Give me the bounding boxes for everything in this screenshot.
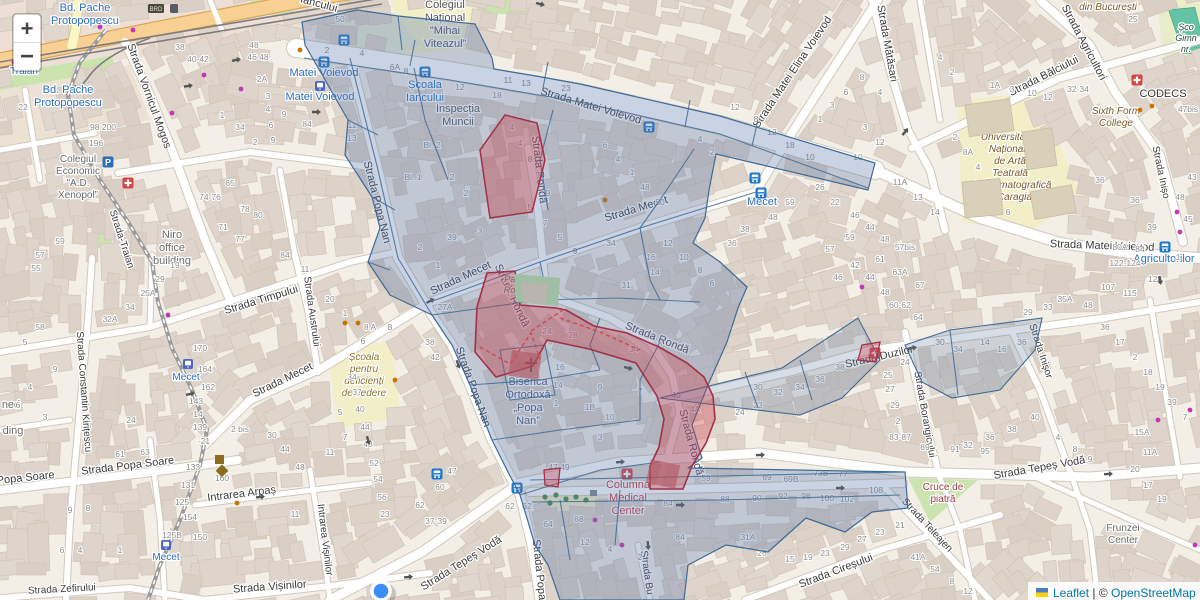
svg-text:6: 6 xyxy=(1006,207,1011,217)
svg-text:62: 62 xyxy=(505,501,515,511)
svg-text:95: 95 xyxy=(980,446,990,456)
svg-text:22: 22 xyxy=(18,102,28,112)
svg-text:5: 5 xyxy=(338,407,343,417)
svg-text:-21: -21 xyxy=(198,436,211,446)
svg-text:48: 48 xyxy=(1175,192,1185,202)
svg-text:2A: 2A xyxy=(257,74,268,84)
svg-text:6: 6 xyxy=(60,545,65,555)
svg-text:91: 91 xyxy=(950,444,960,454)
svg-text:12: 12 xyxy=(963,586,973,596)
svg-text:19: 19 xyxy=(1155,382,1165,392)
svg-text:40: 40 xyxy=(355,404,365,414)
svg-text:Sixth Form: Sixth Form xyxy=(1092,106,1140,117)
svg-text:11: 11 xyxy=(301,264,310,274)
svg-text:17: 17 xyxy=(1143,480,1153,490)
svg-text:36: 36 xyxy=(727,238,737,248)
svg-text:54: 54 xyxy=(930,564,940,574)
svg-text:48: 48 xyxy=(880,287,890,297)
svg-text:P: P xyxy=(105,157,111,167)
svg-text:Școala: Școala xyxy=(349,352,380,363)
svg-text:27: 27 xyxy=(857,534,867,544)
svg-text:BRD: BRD xyxy=(150,7,163,13)
svg-text:1: 1 xyxy=(343,308,348,318)
svg-text:125: 125 xyxy=(175,497,189,507)
svg-text:14: 14 xyxy=(193,409,203,419)
svg-text:36: 36 xyxy=(1095,175,1105,185)
svg-text:19: 19 xyxy=(170,260,180,270)
svg-text:133: 133 xyxy=(186,462,200,472)
svg-text:1: 1 xyxy=(220,110,225,120)
svg-text:48: 48 xyxy=(249,40,259,50)
svg-text:20: 20 xyxy=(1130,464,1140,474)
svg-text:Teatrală: Teatrală xyxy=(992,168,1028,179)
svg-text:8 A: 8 A xyxy=(364,322,377,332)
svg-text:36: 36 xyxy=(985,432,995,442)
svg-text:Bd. Pache: Bd. Pache xyxy=(60,2,111,14)
svg-text:57bis: 57bis xyxy=(895,242,915,252)
svg-text:Cruce de: Cruce de xyxy=(923,482,964,493)
svg-text:Economic: Economic xyxy=(56,166,100,177)
svg-text:12: 12 xyxy=(730,102,740,112)
svg-text:29: 29 xyxy=(890,400,900,410)
svg-text:Mecet: Mecet xyxy=(152,552,179,563)
svg-text:39: 39 xyxy=(1147,222,1157,232)
svg-text:38: 38 xyxy=(1007,424,1017,434)
svg-text:65: 65 xyxy=(225,178,235,188)
svg-text:26: 26 xyxy=(815,182,825,192)
svg-text:150: 150 xyxy=(193,532,207,542)
svg-text:4: 4 xyxy=(1056,432,1061,442)
svg-text:4: 4 xyxy=(78,545,83,555)
svg-text:4: 4 xyxy=(266,104,271,114)
svg-text:Colegiul: Colegiul xyxy=(425,0,465,11)
svg-text:9: 9 xyxy=(68,505,73,515)
svg-text:122·124: 122·124 xyxy=(1109,258,1140,268)
svg-text:34: 34 xyxy=(347,372,357,382)
svg-text:64: 64 xyxy=(913,312,923,322)
svg-text:4: 4 xyxy=(938,52,943,62)
svg-text:154: 154 xyxy=(183,512,197,522)
svg-text:107: 107 xyxy=(1101,282,1115,292)
svg-text:83·87: 83·87 xyxy=(889,432,911,442)
svg-text:38: 38 xyxy=(425,337,435,347)
svg-text:44: 44 xyxy=(865,222,875,232)
svg-text:40-42: 40-42 xyxy=(187,54,209,64)
svg-text:11A: 11A xyxy=(893,177,908,187)
svg-text:Xenopol”: Xenopol” xyxy=(58,190,98,201)
svg-text:CODECS: CODECS xyxy=(1139,88,1186,100)
svg-text:80: 80 xyxy=(253,210,263,220)
svg-text:1A: 1A xyxy=(990,80,1001,90)
svg-text:71: 71 xyxy=(218,222,228,232)
svg-text:54: 54 xyxy=(373,474,383,484)
svg-text:60: 60 xyxy=(435,482,445,492)
svg-text:15: 15 xyxy=(785,554,795,564)
svg-text:59: 59 xyxy=(785,197,795,207)
svg-text:63: 63 xyxy=(140,447,150,457)
svg-text:62: 62 xyxy=(415,500,425,510)
svg-text:164: 164 xyxy=(198,364,212,374)
svg-text:84: 84 xyxy=(280,250,290,260)
svg-text:57: 57 xyxy=(35,250,45,260)
svg-text:33: 33 xyxy=(1043,302,1053,312)
svg-text:1: 1 xyxy=(818,114,823,124)
svg-text:34: 34 xyxy=(125,302,135,312)
svg-text:8: 8 xyxy=(860,72,865,82)
svg-text:63A: 63A xyxy=(892,267,907,277)
svg-text:19: 19 xyxy=(803,552,813,562)
svg-text:nr.: nr. xyxy=(1181,44,1191,54)
svg-text:12: 12 xyxy=(875,137,885,147)
svg-text:37·39: 37·39 xyxy=(425,516,447,526)
svg-text:14: 14 xyxy=(930,207,940,217)
svg-text:4: 4 xyxy=(28,382,33,392)
svg-text:piatră: piatră xyxy=(930,494,955,505)
svg-text:19: 19 xyxy=(1157,494,1167,504)
svg-text:3: 3 xyxy=(863,122,868,132)
svg-text:30: 30 xyxy=(267,430,277,440)
svg-text:8: 8 xyxy=(86,503,91,513)
svg-text:89: 89 xyxy=(920,442,930,452)
svg-text:20: 20 xyxy=(325,294,335,304)
svg-text:Bd. Pache: Bd. Pache xyxy=(43,84,94,96)
svg-text:5: 5 xyxy=(23,337,28,347)
svg-text:162: 162 xyxy=(201,382,215,392)
svg-text:115: 115 xyxy=(1123,288,1137,298)
svg-text:25: 25 xyxy=(883,370,893,380)
svg-text:23: 23 xyxy=(875,527,885,537)
svg-text:25A: 25A xyxy=(140,288,155,298)
svg-text:42: 42 xyxy=(850,260,860,270)
svg-text:131: 131 xyxy=(181,480,195,490)
svg-text:2: 2 xyxy=(1133,352,1138,362)
svg-text:9: 9 xyxy=(271,135,276,145)
svg-text:29: 29 xyxy=(155,274,165,284)
svg-text:84: 84 xyxy=(302,119,312,129)
svg-text:3: 3 xyxy=(266,91,271,101)
svg-text:de vedere: de vedere xyxy=(342,388,387,399)
svg-text:125B: 125B xyxy=(162,530,182,540)
svg-text:29: 29 xyxy=(840,542,850,552)
svg-text:Protopopescu: Protopopescu xyxy=(51,15,119,27)
svg-text:3: 3 xyxy=(43,412,48,422)
svg-text:7: 7 xyxy=(343,432,348,442)
svg-text:29: 29 xyxy=(1023,307,1033,317)
svg-text:44: 44 xyxy=(865,272,875,282)
svg-text:College: College xyxy=(1099,118,1133,129)
svg-text:2: 2 xyxy=(950,67,955,77)
svg-text:60·62: 60·62 xyxy=(889,300,911,310)
svg-text:196: 196 xyxy=(89,138,103,148)
svg-text:143: 143 xyxy=(189,396,203,406)
svg-text:8: 8 xyxy=(388,322,393,332)
svg-text:98 200: 98 200 xyxy=(90,122,116,132)
svg-text:2: 2 xyxy=(953,132,958,142)
svg-text:48: 48 xyxy=(768,212,778,222)
svg-text:170: 170 xyxy=(193,343,207,353)
svg-text:office: office xyxy=(159,242,185,254)
svg-text:56: 56 xyxy=(377,492,387,502)
svg-text:46: 46 xyxy=(850,210,860,220)
svg-text:1: 1 xyxy=(118,545,123,555)
svg-text:80A: 80A xyxy=(1112,242,1127,252)
svg-text:23: 23 xyxy=(820,548,830,558)
svg-text:38: 38 xyxy=(740,224,750,234)
svg-text:52: 52 xyxy=(369,458,379,468)
svg-text:78: 78 xyxy=(240,204,250,214)
svg-text:6: 6 xyxy=(269,120,274,130)
svg-text:48: 48 xyxy=(880,234,890,244)
svg-text:Niro: Niro xyxy=(162,229,182,241)
svg-text:12: 12 xyxy=(1043,92,1053,102)
svg-text:43: 43 xyxy=(1187,172,1197,182)
svg-text:35A: 35A xyxy=(1057,294,1072,304)
svg-text:45: 45 xyxy=(1183,214,1193,224)
svg-text:77: 77 xyxy=(235,234,245,244)
svg-text:32·34: 32·34 xyxy=(1067,84,1089,94)
svg-text:6: 6 xyxy=(361,336,366,346)
svg-text:9: 9 xyxy=(1088,454,1093,464)
svg-text:61: 61 xyxy=(875,254,885,264)
svg-text:Protopopescu: Protopopescu xyxy=(34,97,102,109)
svg-text:38: 38 xyxy=(175,42,185,52)
svg-text:61: 61 xyxy=(115,449,125,459)
svg-text:4: 4 xyxy=(976,162,981,172)
svg-text:15A: 15A xyxy=(1134,427,1149,437)
svg-text:27: 27 xyxy=(885,384,895,394)
svg-text:48: 48 xyxy=(295,462,305,472)
svg-text:Frunzei: Frunzei xyxy=(1106,523,1139,534)
svg-text:84: 84 xyxy=(1135,244,1145,254)
svg-text:59: 59 xyxy=(845,232,855,242)
svg-text:58: 58 xyxy=(35,322,45,332)
svg-text:13: 13 xyxy=(913,192,923,202)
svg-text:24: 24 xyxy=(126,415,136,425)
svg-text:39: 39 xyxy=(1167,397,1177,407)
svg-text:32: 32 xyxy=(963,440,973,450)
svg-text:74-76: 74-76 xyxy=(199,192,221,202)
svg-text:3: 3 xyxy=(830,100,835,110)
svg-text:6: 6 xyxy=(844,87,849,97)
svg-text:44: 44 xyxy=(280,444,290,454)
svg-text:1: 1 xyxy=(1176,252,1181,262)
svg-text:42: 42 xyxy=(430,352,440,362)
svg-text:36: 36 xyxy=(1100,322,1110,332)
svg-text:8: 8 xyxy=(950,576,955,586)
svg-text:32A: 32A xyxy=(102,314,117,324)
svg-text:din București: din București xyxy=(1079,2,1138,13)
svg-text:21: 21 xyxy=(895,520,905,530)
svg-text:34: 34 xyxy=(235,122,245,132)
svg-text:10: 10 xyxy=(1027,88,1037,98)
svg-text:Colegiul: Colegiul xyxy=(60,154,96,165)
svg-text:Șco: Șco xyxy=(1178,22,1194,32)
svg-text:4: 4 xyxy=(878,87,883,97)
svg-text:18: 18 xyxy=(1143,367,1153,377)
svg-text:Leaflet | © OpenStreetMap: Leaflet | © OpenStreetMap xyxy=(1053,586,1196,600)
svg-text:37: 37 xyxy=(352,387,362,397)
svg-text:9: 9 xyxy=(53,364,58,374)
svg-text:25: 25 xyxy=(1128,14,1138,24)
svg-text:59: 59 xyxy=(55,236,65,246)
svg-text:44: 44 xyxy=(360,422,370,432)
svg-text:46: 46 xyxy=(833,272,843,282)
svg-text:7: 7 xyxy=(1183,412,1188,422)
svg-text:40: 40 xyxy=(1030,412,1040,422)
svg-text:Gimn: Gimn xyxy=(1175,33,1197,43)
svg-text:55: 55 xyxy=(31,263,41,273)
svg-text:67: 67 xyxy=(915,280,925,290)
svg-text:de Artă: de Artă xyxy=(994,156,1026,167)
svg-text:6: 6 xyxy=(16,400,21,410)
svg-text:11: 11 xyxy=(326,447,335,457)
svg-text:24: 24 xyxy=(900,357,910,367)
svg-text:41A: 41A xyxy=(910,552,925,562)
svg-text:2: 2 xyxy=(896,416,901,426)
svg-text:−: − xyxy=(20,43,34,70)
svg-text:48: 48 xyxy=(1083,300,1093,310)
svg-text:3: 3 xyxy=(1010,84,1015,94)
svg-text:47bis: 47bis xyxy=(1178,104,1198,114)
svg-text:36: 36 xyxy=(1130,195,1140,205)
svg-text:11: 11 xyxy=(291,509,300,519)
svg-text:+: + xyxy=(21,16,34,41)
svg-text:46 48: 46 48 xyxy=(247,52,269,62)
svg-text:8: 8 xyxy=(1073,444,1078,454)
svg-text:Agricultorilor: Agricultorilor xyxy=(1133,253,1194,265)
svg-text:2: 2 xyxy=(253,137,258,147)
svg-text:23: 23 xyxy=(380,509,390,519)
svg-text:17: 17 xyxy=(1115,337,1125,347)
svg-text:"A.D.: "A.D. xyxy=(67,178,90,189)
svg-text:9: 9 xyxy=(282,109,287,119)
svg-text:11A: 11A xyxy=(1143,447,1158,457)
svg-text:57: 57 xyxy=(825,244,835,254)
svg-text:Center: Center xyxy=(1108,535,1139,546)
svg-text:47: 47 xyxy=(447,466,457,476)
svg-text:8A: 8A xyxy=(963,147,974,157)
svg-text:139: 139 xyxy=(193,422,207,432)
svg-text:ding: ding xyxy=(3,425,24,437)
svg-text:Mecet: Mecet xyxy=(172,372,199,383)
svg-text:2 bis: 2 bis xyxy=(231,424,249,434)
svg-text:22: 22 xyxy=(830,197,840,207)
